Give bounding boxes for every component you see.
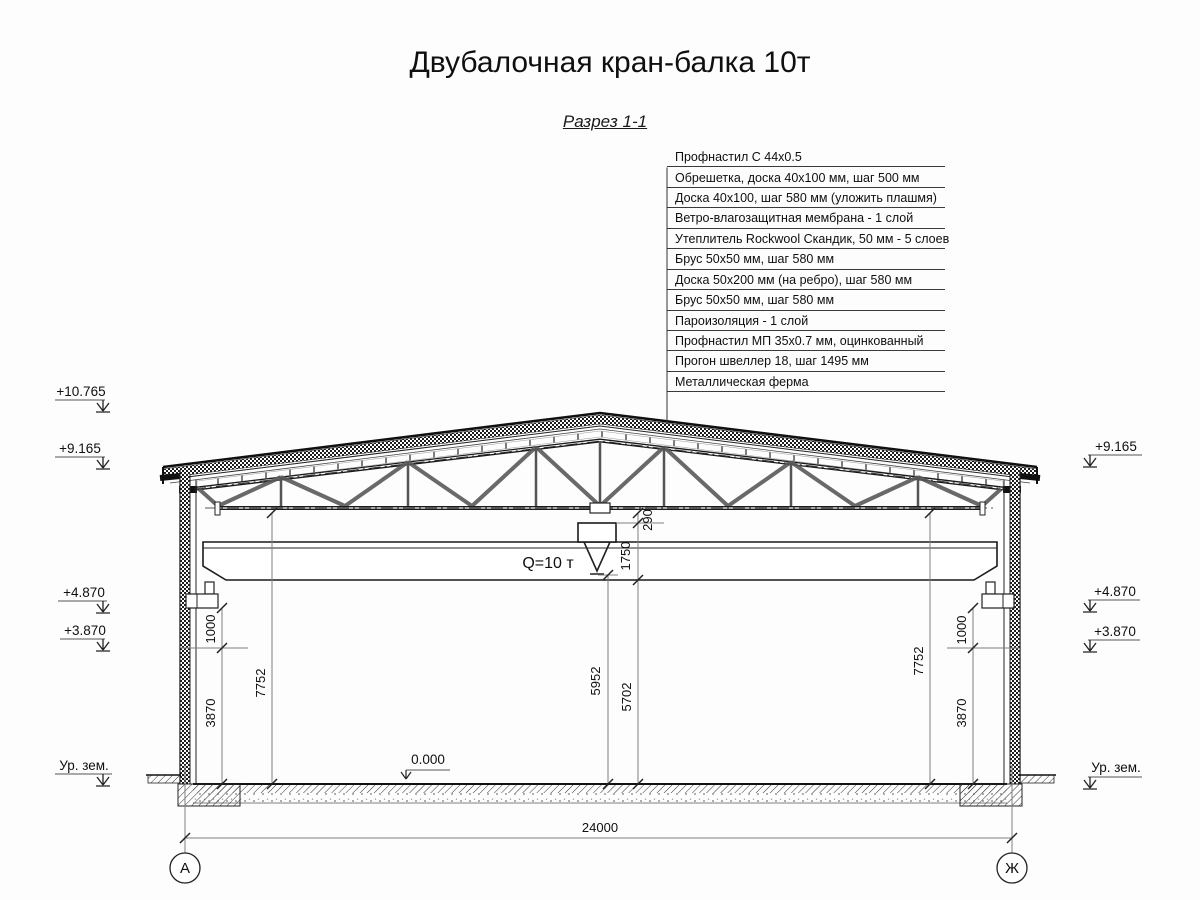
ground-strip-right — [1020, 775, 1054, 783]
elev-eave-right: +9.165 — [1095, 439, 1137, 454]
dim-trolley-height: 1750 — [618, 542, 633, 571]
elev-ridge: +10.765 — [56, 384, 105, 399]
dim-rail-gap-right: 1000 — [954, 616, 969, 645]
dim-rail-height-right: 3870 — [954, 699, 969, 728]
crane-capacity-label: Q=10 т — [522, 555, 574, 572]
wall-panel-left — [181, 474, 190, 784]
foundation-left — [178, 784, 240, 806]
axis-letter-right: Ж — [1005, 860, 1019, 877]
elev-rail-right: +4.870 — [1094, 584, 1136, 599]
walls — [180, 470, 1020, 784]
ridge-splice-plate — [590, 503, 610, 513]
wall-panel-right — [1011, 474, 1020, 784]
elev-level-left: +3.870 — [64, 623, 106, 638]
dim-beam-clearance: 5702 — [619, 683, 634, 712]
drawing-sheet: Двубалочная кран-балка 10т Разрез 1-1 Пр… — [0, 0, 1200, 900]
dim-clear-height-left: 7752 — [253, 669, 268, 698]
dim-rail-height-left: 3870 — [203, 699, 218, 728]
floor-slab — [193, 785, 1007, 793]
elev-level-right: +3.870 — [1094, 624, 1136, 639]
dim-rail-gap-left: 1000 — [203, 615, 218, 644]
crane-bridge — [186, 523, 1014, 608]
grid-axes: А Ж — [170, 853, 1027, 883]
dim-span: 24000 — [582, 820, 618, 835]
floor-elevation-mark: 0.000 — [401, 752, 450, 779]
elev-rail-left: +4.870 — [63, 585, 105, 600]
runway-beam-left — [186, 594, 218, 608]
end-truck-right — [986, 582, 995, 594]
end-truck-left — [205, 582, 214, 594]
floor-and-foundation — [146, 775, 1056, 806]
elevation-marks: +10.765 +9.165 +4.870 +3.870 Ур. зем. +9… — [55, 384, 1142, 789]
crane-trolley — [578, 523, 616, 542]
axis-letter-left: А — [180, 860, 190, 877]
runway-beam-right — [982, 594, 1014, 608]
floor-subbase — [193, 793, 1007, 803]
dim-hook-clearance: 5952 — [588, 667, 603, 696]
dim-chord-offset: 290 — [640, 509, 655, 531]
eave-fascia-right — [1020, 476, 1040, 478]
elev-ground-left: Ур. зем. — [59, 758, 109, 773]
section-drawing: 7752 1000 3870 7752 1000 3870 5952 5702 … — [0, 0, 1200, 900]
eave-fascia-left — [160, 476, 180, 478]
ground-strip-left — [148, 775, 180, 783]
dim-clear-height-right: 7752 — [911, 647, 926, 676]
elev-ground-right: Ур. зем. — [1091, 760, 1141, 775]
elev-floor: 0.000 — [411, 752, 445, 767]
elev-eave-left: +9.165 — [59, 441, 101, 456]
